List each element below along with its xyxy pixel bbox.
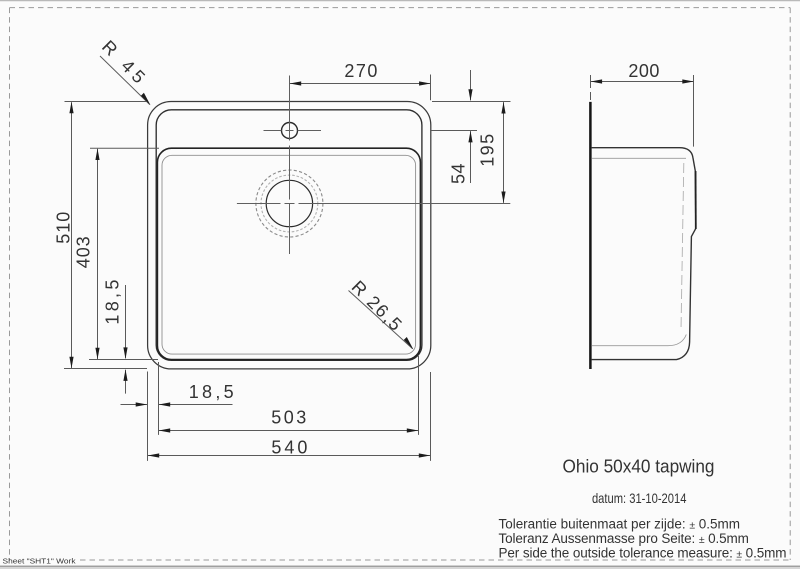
svg-text:Sheet "SHT1" Work: Sheet "SHT1" Work: [3, 557, 76, 566]
svg-text:54: 54: [449, 163, 469, 184]
svg-text:datum: 31-10-2014: datum: 31-10-2014: [592, 491, 687, 506]
svg-text:Tolerantie buitenmaat per zijd: Tolerantie buitenmaat per zijde: ± 0.5mm: [499, 517, 741, 532]
svg-text:18,5: 18,5: [189, 382, 234, 402]
svg-text:403: 403: [74, 236, 94, 268]
svg-text:503: 503: [271, 408, 306, 428]
svg-text:18,5: 18,5: [102, 280, 122, 325]
svg-text:Ohio 50x40 tapwing: Ohio 50x40 tapwing: [563, 455, 715, 476]
svg-text:510: 510: [53, 212, 73, 244]
svg-text:195: 195: [478, 134, 498, 167]
svg-text:540: 540: [271, 438, 307, 458]
svg-text:200: 200: [628, 61, 659, 81]
svg-text:Per side the outside tolerance: Per side the outside tolerance measure: …: [499, 545, 787, 560]
svg-text:Toleranz Aussenmasse pro Seite: Toleranz Aussenmasse pro Seite: ± 0.5mm: [499, 531, 749, 546]
svg-text:270: 270: [344, 61, 377, 81]
